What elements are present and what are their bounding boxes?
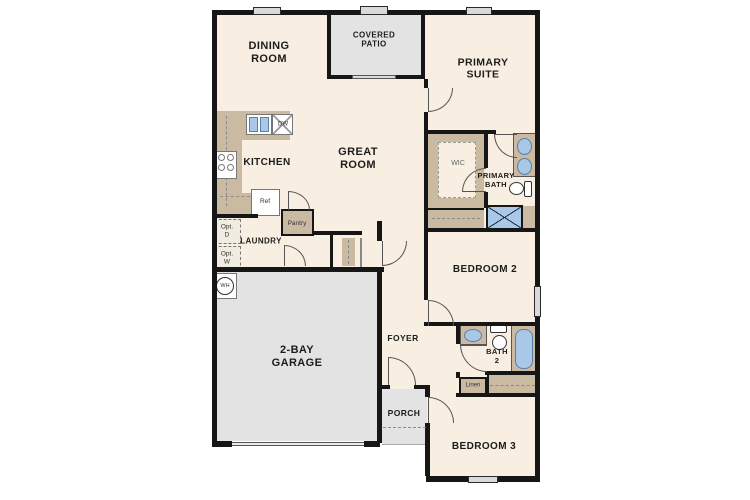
- garage-door: [232, 442, 364, 446]
- wic-label: WIC: [451, 160, 465, 168]
- covered-patio-label: COVERED PATIO: [353, 31, 395, 50]
- bath2-label: BATH 2: [486, 348, 508, 366]
- window: [253, 7, 281, 15]
- wall-segment: [377, 221, 382, 241]
- great-room-label: GREAT ROOM: [338, 146, 378, 172]
- sink-basin-left: [249, 117, 258, 132]
- closet-rod-dashed: [348, 240, 349, 264]
- wall-bedroom2-left: [424, 232, 428, 300]
- closet-rod-dashed: [490, 385, 535, 386]
- shower: [486, 205, 523, 230]
- wall-exterior-left: [212, 10, 217, 447]
- wall-bedroom2-top: [424, 228, 537, 232]
- window: [468, 476, 498, 483]
- closet-rod-dashed: [432, 218, 480, 219]
- patio-sliding-door: [352, 75, 396, 79]
- wall-segment: [330, 234, 333, 267]
- wall-garage-bottom: [212, 441, 232, 447]
- wall-segment: [312, 231, 362, 235]
- wall-bath2-left: [456, 372, 460, 378]
- wall-patio-right: [421, 10, 425, 79]
- refrigerator-label: Ref: [260, 198, 270, 206]
- burner-icon: [227, 164, 234, 171]
- kitchen-label: KITCHEN: [243, 157, 290, 169]
- bath2-toilet-tank: [490, 325, 507, 333]
- dining-room-label: DINING ROOM: [249, 40, 290, 66]
- porch-edge-dashed: [383, 427, 426, 428]
- burner-icon: [218, 154, 225, 161]
- wall-porch-top: [414, 385, 427, 389]
- bath2-sink: [464, 329, 482, 342]
- wall-porch-top: [382, 385, 390, 389]
- wall-patio-bottom: [396, 75, 425, 79]
- foyer-label: FOYER: [387, 333, 418, 343]
- optional-dryer-label: Opt. D: [221, 223, 233, 238]
- wall-garage-right: [377, 267, 382, 443]
- wall-segment: [424, 112, 428, 132]
- laundry-label: LAUNDRY: [240, 236, 282, 245]
- porch-label: PORCH: [388, 408, 421, 418]
- bedroom2-label: BEDROOM 2: [453, 264, 517, 276]
- window: [534, 286, 541, 317]
- window: [360, 6, 388, 15]
- window: [466, 7, 492, 15]
- wall-patio-bottom: [327, 75, 352, 79]
- wall-bedroom3-top: [456, 393, 537, 397]
- garage-label: 2-BAY GARAGE: [272, 344, 323, 370]
- water-heater-label: WH: [220, 283, 229, 289]
- wall-patio-left: [327, 10, 331, 79]
- sink-basin-right: [260, 117, 269, 132]
- primary-sink-1: [517, 138, 532, 155]
- wall-bedroom3-left: [425, 423, 430, 476]
- linen-label: Linen: [466, 382, 481, 389]
- wall-exterior-right: [535, 10, 540, 482]
- bathtub: [515, 329, 533, 369]
- pantry-label: Pantry: [288, 220, 307, 228]
- wall-garage-top: [212, 267, 384, 272]
- wall-segment: [424, 79, 428, 88]
- wall-bath2-left: [456, 326, 460, 344]
- primary-toilet-tank: [524, 181, 532, 197]
- primary-bath-label: PRIMARY BATH: [477, 172, 514, 190]
- wall-laundry-top: [212, 214, 258, 218]
- cabinet-dashed-line: [220, 196, 250, 197]
- wall-wic-left: [424, 134, 428, 232]
- burner-icon: [227, 154, 234, 161]
- floor-plan: DW Ref Pantry Opt. D Opt. W WH WIC Linen: [0, 0, 750, 500]
- wall-wic-bath: [484, 134, 488, 168]
- shower-side-ledge: [523, 206, 535, 228]
- optional-washer-label: Opt. W: [221, 250, 233, 265]
- closet-opening-line: [360, 238, 362, 267]
- dishwasher-label: DW: [278, 121, 288, 128]
- primary-suite-label: PRIMARY SUITE: [458, 57, 509, 82]
- primary-sink-2: [517, 158, 532, 175]
- bedroom3-label: BEDROOM 3: [452, 441, 516, 453]
- burner-icon: [218, 164, 225, 171]
- wall-wic-bath: [484, 192, 488, 208]
